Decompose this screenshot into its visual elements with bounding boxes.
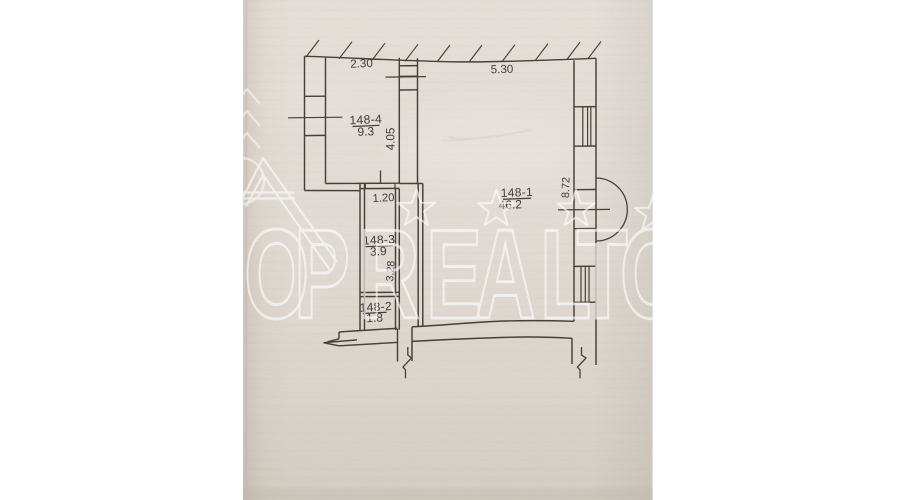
svg-text:5.30: 5.30 (491, 63, 514, 76)
svg-text:9.3: 9.3 (357, 124, 375, 139)
svg-text:8.72: 8.72 (560, 177, 573, 198)
svg-text:4.05: 4.05 (385, 128, 398, 151)
svg-text:OPREALTO: OPREALTO (244, 204, 685, 346)
svg-text:2.30: 2.30 (350, 57, 373, 71)
